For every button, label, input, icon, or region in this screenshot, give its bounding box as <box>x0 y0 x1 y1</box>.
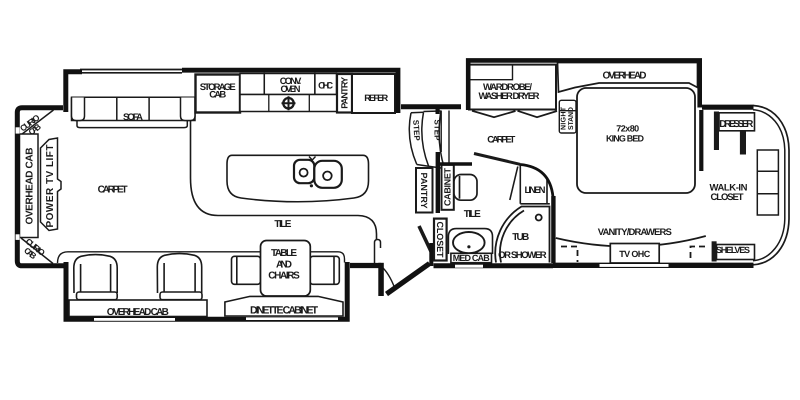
svg-text:OR SHOWER: OR SHOWER <box>498 250 547 261</box>
svg-text:SHELVES: SHELVES <box>716 245 750 255</box>
svg-text:NIGHT: NIGHT <box>561 106 568 130</box>
svg-text:KING BED: KING BED <box>606 134 645 144</box>
svg-text:TUB: TUB <box>512 232 529 243</box>
svg-text:72x80: 72x80 <box>616 124 639 134</box>
svg-text:CHAIRS: CHAIRS <box>268 270 300 281</box>
svg-text:CARPET: CARPET <box>487 134 515 145</box>
svg-text:CAB: CAB <box>209 89 226 100</box>
svg-text:CARPET: CARPET <box>98 184 128 195</box>
svg-text:OVERHEAD CAB: OVERHEAD CAB <box>24 148 35 225</box>
svg-text:OVERHEAD: OVERHEAD <box>603 70 647 81</box>
svg-text:LINEN: LINEN <box>525 185 546 196</box>
svg-text:CABINET: CABINET <box>443 168 453 207</box>
svg-text:PANTRY: PANTRY <box>419 173 429 209</box>
svg-text:MED CAB: MED CAB <box>453 253 491 263</box>
svg-text:CLOSET: CLOSET <box>711 192 744 203</box>
svg-text:TILE: TILE <box>464 209 481 220</box>
svg-text:STAND: STAND <box>568 107 575 130</box>
svg-text:TV OHC: TV OHC <box>619 249 651 259</box>
svg-text:DINETTE CABINET: DINETTE CABINET <box>250 304 319 316</box>
svg-text:VANITY/DRAWERS: VANITY/DRAWERS <box>598 227 672 238</box>
svg-text:OHC: OHC <box>318 81 333 91</box>
svg-text:REFER: REFER <box>364 93 388 103</box>
svg-text:STEP: STEP <box>432 120 441 142</box>
svg-text:TABLE: TABLE <box>271 248 297 259</box>
svg-text:SOFA: SOFA <box>123 112 143 123</box>
svg-text:POWER TV LIFT: POWER TV LIFT <box>45 145 56 228</box>
svg-text:CLOSET: CLOSET <box>435 222 445 259</box>
svg-text:OVEN: OVEN <box>281 84 301 94</box>
svg-text:STEP: STEP <box>411 120 421 142</box>
svg-text:DRESSER: DRESSER <box>719 119 754 130</box>
svg-text:WASHER DRYER: WASHER DRYER <box>479 91 540 102</box>
svg-text:AND: AND <box>276 259 292 270</box>
svg-text:OVERHEAD CAB: OVERHEAD CAB <box>107 307 169 318</box>
svg-text:PANTRY: PANTRY <box>340 77 350 109</box>
svg-text:TILE: TILE <box>274 219 291 230</box>
